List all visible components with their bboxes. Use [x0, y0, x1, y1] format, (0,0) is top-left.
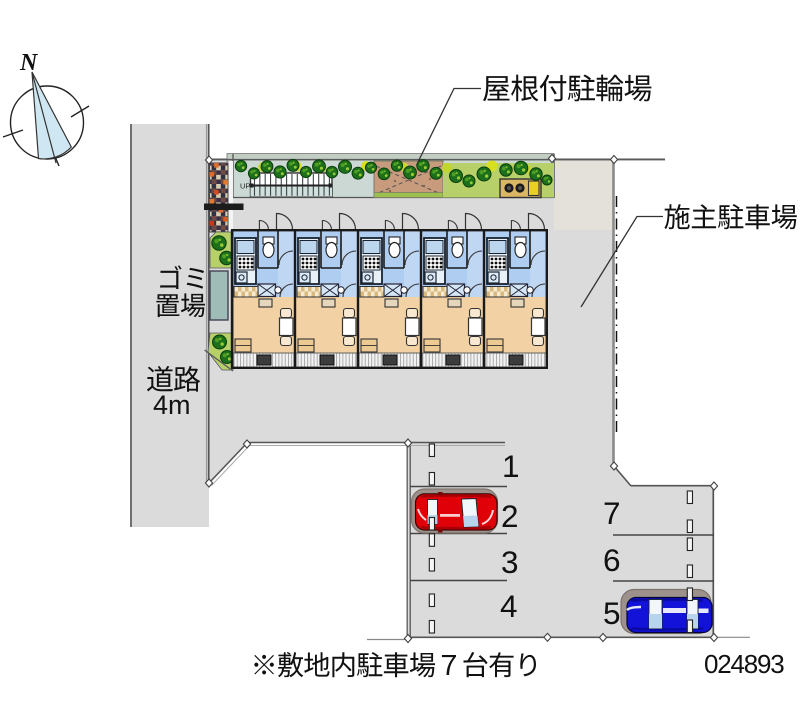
svg-text:2: 2	[501, 498, 519, 534]
svg-text:024893: 024893	[704, 649, 784, 679]
svg-text:1: 1	[502, 448, 520, 484]
svg-text:4m: 4m	[153, 390, 191, 420]
svg-text:6: 6	[603, 542, 621, 578]
svg-text:N: N	[19, 50, 39, 76]
svg-text:5: 5	[603, 595, 621, 631]
svg-text:7: 7	[603, 495, 621, 531]
svg-text:3: 3	[501, 544, 519, 580]
svg-text:UP: UP	[240, 182, 250, 191]
svg-text:4: 4	[500, 588, 518, 624]
